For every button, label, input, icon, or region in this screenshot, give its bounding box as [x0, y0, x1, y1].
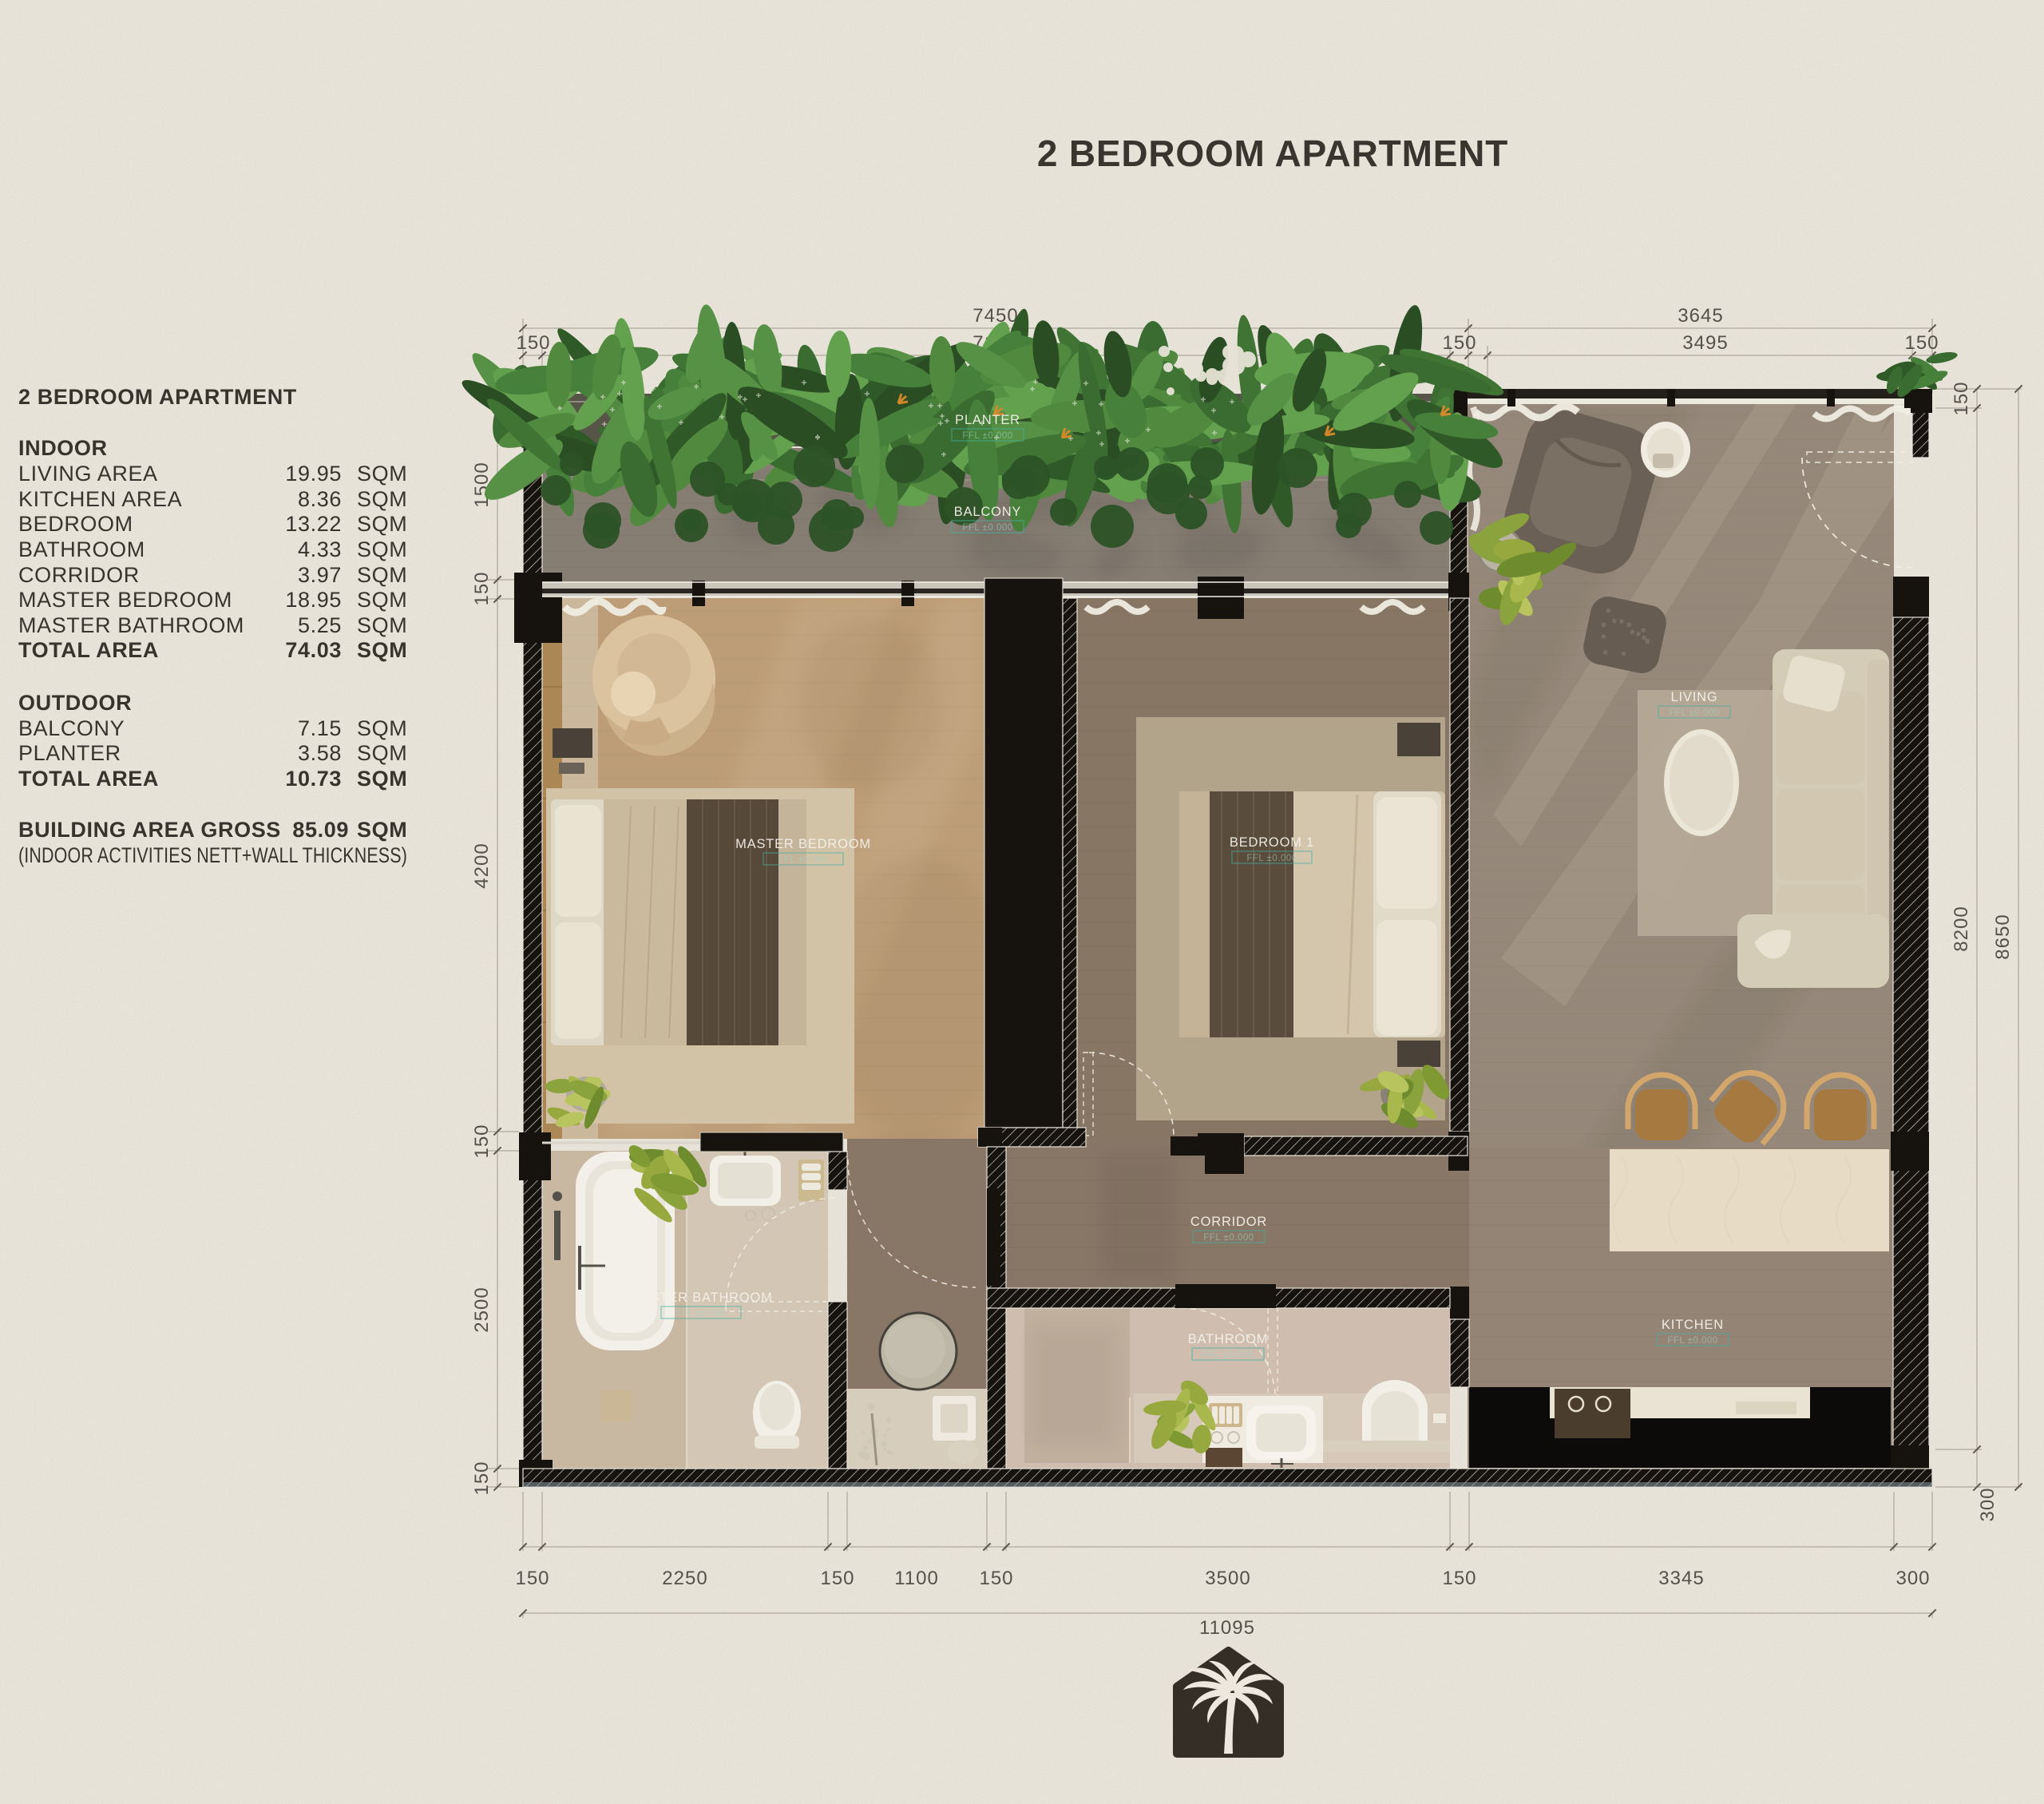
- svg-text:150: 150: [820, 1568, 854, 1589]
- svg-text:FFL ±0.000: FFL ±0.000: [962, 431, 1012, 441]
- svg-text:FFL ±0.000: FFL ±0.000: [962, 523, 1012, 533]
- svg-text:150: 150: [1442, 1568, 1476, 1589]
- svg-text:SQM: SQM: [357, 487, 407, 511]
- svg-text:2500: 2500: [471, 1287, 493, 1332]
- svg-text:MASTER BEDROOM: MASTER BEDROOM: [18, 588, 232, 612]
- svg-text:BEDROOM: BEDROOM: [18, 512, 133, 536]
- svg-text:150: 150: [979, 1568, 1013, 1589]
- svg-text:150: 150: [471, 1124, 493, 1158]
- svg-text:300: 300: [1977, 1487, 1998, 1521]
- svg-text:SQM: SQM: [357, 563, 407, 587]
- svg-text:FFL ±0.000: FFL ±0.000: [778, 855, 828, 865]
- svg-text:LIVING: LIVING: [1671, 690, 1718, 704]
- svg-text:2 BEDROOM APARTMENT: 2 BEDROOM APARTMENT: [18, 385, 297, 409]
- svg-text:19.95: 19.95: [285, 462, 342, 486]
- svg-text:BATHROOM: BATHROOM: [18, 537, 145, 561]
- svg-text:18.95: 18.95: [285, 588, 342, 612]
- svg-text:150: 150: [471, 571, 493, 605]
- svg-text:8200: 8200: [1951, 906, 1972, 951]
- svg-text:KITCHEN: KITCHEN: [1662, 1318, 1724, 1332]
- svg-text:150: 150: [1442, 332, 1476, 354]
- svg-text:PLANTER: PLANTER: [955, 413, 1020, 427]
- svg-text:KITCHEN AREA: KITCHEN AREA: [18, 487, 182, 511]
- svg-text:MASTER BATHROOM: MASTER BATHROOM: [629, 1291, 772, 1305]
- svg-text:150: 150: [471, 1461, 493, 1495]
- svg-text:PLANTER: PLANTER: [18, 741, 121, 765]
- svg-text:8650: 8650: [1992, 914, 2014, 959]
- svg-text:OUTDOOR: OUTDOOR: [18, 691, 132, 715]
- svg-text:2 BEDROOM APARTMENT: 2 BEDROOM APARTMENT: [1037, 133, 1508, 174]
- svg-text:SQM: SQM: [357, 537, 407, 561]
- svg-text:150: 150: [1904, 332, 1939, 354]
- svg-text:3.97: 3.97: [298, 563, 342, 587]
- svg-text:FFL ±0.000: FFL ±0.000: [1246, 854, 1297, 863]
- svg-text:3.58: 3.58: [298, 741, 342, 765]
- svg-text:SQM: SQM: [357, 818, 407, 842]
- svg-text:FFL ±0.000: FFL ±0.000: [1203, 1233, 1254, 1243]
- svg-text:1100: 1100: [894, 1568, 939, 1589]
- svg-text:MASTER BATHROOM: MASTER BATHROOM: [18, 613, 244, 637]
- svg-text:74.03: 74.03: [285, 638, 342, 662]
- svg-text:4.33: 4.33: [298, 537, 342, 561]
- svg-text:FFL ±0.000: FFL ±0.000: [1667, 1336, 1717, 1346]
- svg-text:7.15: 7.15: [298, 716, 342, 740]
- svg-text:BEDROOM 1: BEDROOM 1: [1230, 835, 1314, 850]
- svg-text:FFL ±0.000: FFL ±0.000: [675, 1309, 726, 1318]
- svg-text:7450: 7450: [972, 305, 1018, 327]
- svg-text:(INDOOR ACTIVITIES NETT+WALL T: (INDOOR ACTIVITIES NETT+WALL THICKNESS): [18, 843, 407, 867]
- svg-text:150: 150: [516, 332, 550, 354]
- svg-text:CORRIDOR: CORRIDOR: [18, 563, 140, 587]
- svg-text:SQM: SQM: [357, 716, 407, 740]
- svg-text:SQM: SQM: [357, 512, 407, 536]
- svg-text:TOTAL AREA: TOTAL AREA: [18, 638, 159, 662]
- svg-text:MASTER BEDROOM: MASTER BEDROOM: [735, 837, 871, 851]
- svg-text:150: 150: [1951, 381, 1972, 415]
- svg-text:300: 300: [1895, 1568, 1930, 1589]
- svg-text:BUILDING AREA GROSS: BUILDING AREA GROSS: [18, 818, 281, 842]
- svg-text:3645: 3645: [1678, 305, 1723, 327]
- svg-text:BATHROOM: BATHROOM: [1188, 1332, 1269, 1346]
- svg-text:150: 150: [515, 1568, 549, 1589]
- svg-text:FFL ±0.000: FFL ±0.000: [1669, 708, 1719, 718]
- svg-text:FFL ±0.000: FFL ±0.000: [1202, 1350, 1253, 1360]
- svg-text:BALCONY: BALCONY: [954, 505, 1021, 519]
- svg-text:13.22: 13.22: [285, 512, 342, 536]
- svg-text:3500: 3500: [1205, 1568, 1250, 1589]
- svg-text:INDOOR: INDOOR: [18, 436, 108, 460]
- svg-text:85.09: 85.09: [292, 818, 349, 842]
- svg-text:CORRIDOR: CORRIDOR: [1190, 1215, 1267, 1229]
- svg-text:SQM: SQM: [357, 613, 407, 637]
- svg-text:BALCONY: BALCONY: [18, 716, 125, 740]
- svg-text:SQM: SQM: [357, 741, 407, 765]
- svg-text:5.25: 5.25: [298, 613, 342, 637]
- svg-text:LIVING AREA: LIVING AREA: [18, 462, 158, 486]
- svg-text:11095: 11095: [1199, 1617, 1255, 1639]
- svg-text:4200: 4200: [471, 843, 493, 888]
- svg-text:SQM: SQM: [357, 588, 407, 612]
- svg-text:10.73: 10.73: [285, 767, 342, 791]
- svg-text:2250: 2250: [662, 1568, 707, 1589]
- svg-text:8.36: 8.36: [298, 487, 342, 511]
- svg-text:SQM: SQM: [357, 767, 407, 791]
- svg-text:SQM: SQM: [357, 462, 407, 486]
- svg-text:3345: 3345: [1658, 1568, 1704, 1589]
- svg-text:SQM: SQM: [357, 638, 407, 662]
- svg-text:3495: 3495: [1682, 332, 1728, 354]
- svg-text:TOTAL AREA: TOTAL AREA: [18, 767, 159, 791]
